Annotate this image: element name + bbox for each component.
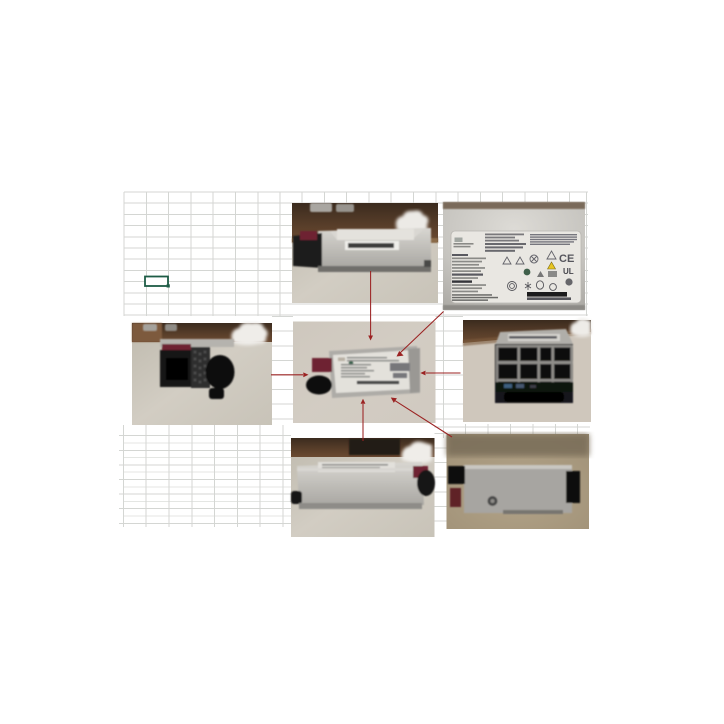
svg-text:CE: CE	[559, 253, 574, 265]
svg-text:UL: UL	[563, 267, 574, 276]
